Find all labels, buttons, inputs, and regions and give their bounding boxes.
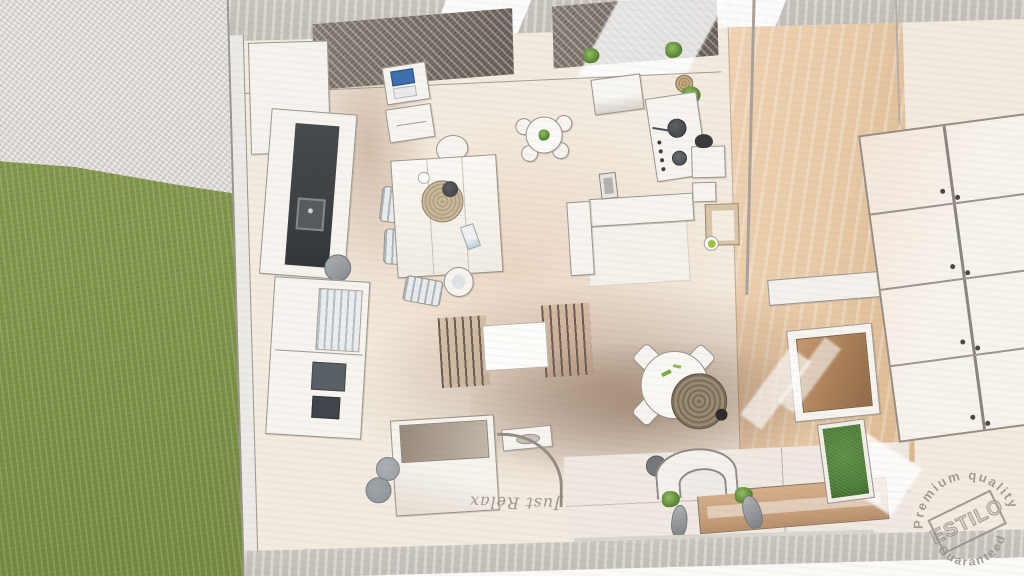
laptop-screen	[390, 68, 415, 86]
trash-bin	[324, 254, 352, 282]
kitchen-counter-left	[265, 276, 370, 439]
wardrobe-row-seam	[891, 343, 1024, 367]
slatted-bench	[437, 303, 592, 392]
architectural-top-view: Just Relax	[0, 0, 1024, 576]
photo-frame-image	[603, 177, 614, 194]
drawer-line	[396, 121, 426, 126]
wardrobe-knobs	[940, 188, 946, 194]
laptop-console	[382, 61, 431, 105]
wall-shelf-small	[692, 182, 717, 203]
table-seam2	[461, 157, 469, 275]
wardrobe-row-seam	[881, 267, 1024, 291]
pan-handle	[652, 127, 668, 132]
window-console-middle	[590, 73, 644, 115]
microwave	[311, 396, 340, 420]
cat-figure	[695, 134, 713, 148]
sideboard-rug	[585, 221, 691, 287]
dining-bench	[402, 275, 444, 307]
pendant-knob	[715, 409, 727, 421]
office-chair-seat	[452, 275, 466, 289]
fruit-bowl	[704, 236, 719, 251]
photo-frame	[599, 172, 619, 200]
window-cabinet	[385, 103, 436, 143]
wall-shelf-top	[691, 145, 726, 178]
island-sink	[295, 197, 325, 231]
frying-pan	[666, 117, 688, 139]
sideboard-vertical	[566, 201, 595, 276]
bench-seat	[482, 321, 549, 371]
floor-decal-text: Just Relax	[469, 492, 561, 513]
laptop-keyboard	[393, 85, 417, 99]
pouf	[365, 477, 392, 504]
stove-knobs	[657, 140, 662, 145]
lime-fruit	[708, 240, 716, 248]
woven-pendant-lamp	[670, 373, 728, 431]
office-chair	[443, 267, 474, 298]
stair-well	[399, 420, 489, 463]
glass-cabinet-front	[315, 288, 363, 353]
wardrobe-row-seam	[870, 191, 1024, 215]
island-countertop	[285, 123, 340, 268]
cooking-pot	[671, 150, 688, 167]
oven	[311, 362, 347, 392]
